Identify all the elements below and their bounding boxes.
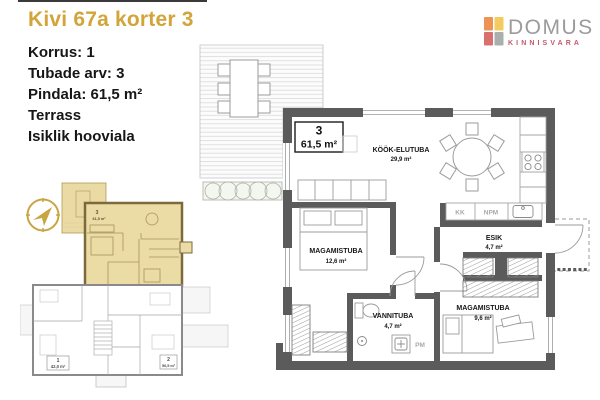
info-line-floor: Korrus: 1 xyxy=(28,42,142,63)
bathroom-fixtures xyxy=(355,303,410,353)
terrace-table xyxy=(218,60,270,117)
apartment-info-list: Korrus: 1 Tubade arv: 3 Pindala: 61,5 m²… xyxy=(28,42,142,147)
window-edge-artifact xyxy=(18,0,207,2)
bathroom-name: VANNITUBA xyxy=(373,313,414,320)
building-ground-plan: 1 42,0 m² 2 56,5 m² xyxy=(20,285,228,387)
bathroom-area: 4,7 m² xyxy=(384,323,401,330)
main-floorplan: KK NPM 3 61,5 m² xyxy=(190,35,600,395)
svg-text:2: 2 xyxy=(167,357,170,363)
hall-area: 4,7 m² xyxy=(485,244,502,251)
svg-text:56,5 m²: 56,5 m² xyxy=(162,364,176,368)
shower-symbol xyxy=(358,337,367,346)
bedroom1-name: MAGAMISTUBA xyxy=(309,248,362,255)
svg-text:42,0 m²: 42,0 m² xyxy=(51,364,66,369)
bedroom2-area: 9,6 m² xyxy=(474,315,491,322)
info-line-rooms: Tubade arv: 3 xyxy=(28,63,142,84)
dining-table xyxy=(440,123,505,191)
dishwasher-label: NPM xyxy=(484,210,498,217)
mini-unit3-number: 3 xyxy=(96,210,99,216)
bedroom1-furniture xyxy=(292,208,367,355)
unit-label-box: 3 61,5 m² xyxy=(295,122,357,152)
mini-unit3-area: 61,5 m² xyxy=(92,217,106,221)
sofa xyxy=(298,180,386,200)
floorplan-flyer: Kivi 67a korter 3 Korrus: 1 Tubade arv: … xyxy=(0,0,600,400)
fridge-label: KK xyxy=(455,210,465,217)
kitchen-living-name: KÖÖK-ELUTUBA xyxy=(373,145,430,154)
bedroom1-area: 12,6 m² xyxy=(326,258,347,265)
bedroom1-door xyxy=(396,257,424,285)
site-mini-plan: 3 61,5 m² xyxy=(20,175,240,390)
hall-name: ESIK xyxy=(486,235,502,242)
bedroom2-name: MAGAMISTUBA xyxy=(456,305,509,312)
kitchen-living-area: 29,9 m² xyxy=(391,156,412,163)
compass-icon xyxy=(26,198,60,232)
info-line-area: Pindala: 61,5 m² xyxy=(28,84,142,105)
doors xyxy=(390,257,467,296)
unit-area: 61,5 m² xyxy=(301,139,338,151)
stove xyxy=(522,152,544,172)
entrance-porch xyxy=(552,219,589,271)
info-line-terrace: Terrass xyxy=(28,105,142,126)
washing-machine xyxy=(392,335,410,353)
info-line-yard: Isiklik hooviala xyxy=(28,126,142,147)
unit2-label: 2 56,5 m² xyxy=(160,355,177,369)
mini-apartment-highlight: 3 61,5 m² xyxy=(85,203,192,287)
page-title: Kivi 67a korter 3 xyxy=(28,8,194,32)
unit-number: 3 xyxy=(316,124,323,138)
staircase xyxy=(94,321,112,355)
washer-label: PM xyxy=(415,342,425,349)
unit1-label: 1 42,0 m² xyxy=(47,356,69,370)
